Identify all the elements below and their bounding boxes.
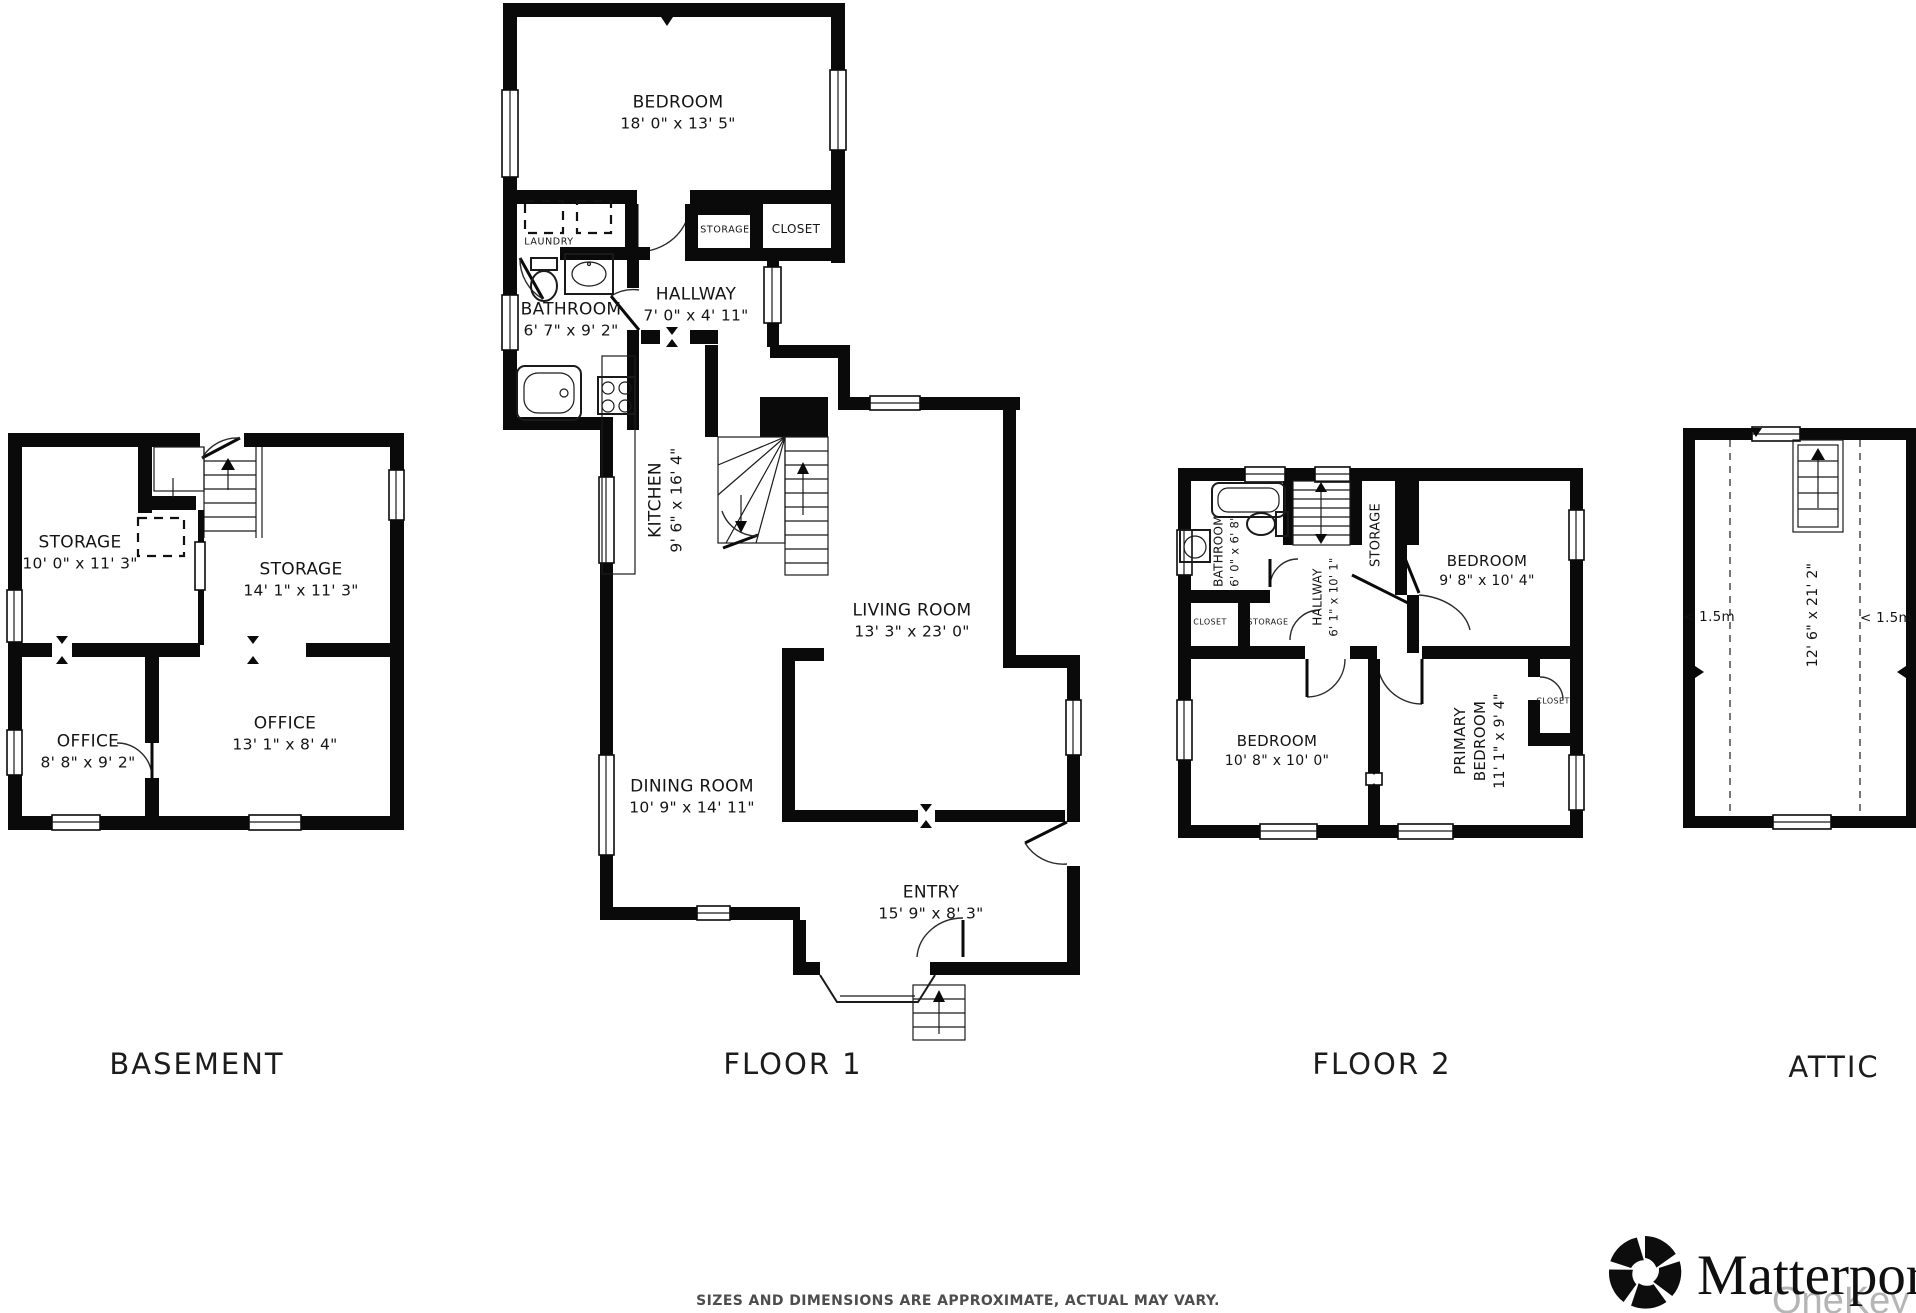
room-label-storage-small-f2: STORAGE: [1248, 618, 1289, 629]
room-label-closet-f2: CLOSET: [1193, 618, 1226, 629]
room-label-office1: OFFICE 8' 8" x 9' 2": [40, 731, 135, 774]
attic-dims-label: 12' 6" x 21' 2": [1804, 563, 1822, 668]
room-label-storage-f1: STORAGE: [700, 225, 749, 238]
room-label-bedroom-f1: BEDROOM 18' 0" x 13' 5": [620, 92, 735, 135]
title-basement: BASEMENT: [109, 1047, 284, 1081]
room-label-dining: DINING ROOM 10' 9" x 14' 11": [629, 776, 755, 819]
floor1-floorplan: [498, 0, 1083, 1045]
room-label-closet-primary: CLOSET: [1536, 697, 1569, 708]
matterport-logo-icon: [1603, 1232, 1687, 1313]
room-label-bathroom-f2: BATHROOM 6' 0" x 6' 8": [1212, 515, 1243, 587]
room-label-hallway-f2: HALLWAY 6' 1" x 10' 1": [1311, 557, 1342, 636]
room-label-bathroom-f1: BATHROOM 6' 7" x 9' 2": [521, 299, 622, 342]
room-label-primary-bedroom: PRIMARY BEDROOM 11' 1" x 9' 4": [1451, 693, 1509, 788]
title-floor1: FLOOR 1: [723, 1047, 862, 1081]
title-attic: ATTIC: [1788, 1050, 1879, 1084]
room-label-closet-f1: CLOSET: [772, 222, 820, 238]
floorplan-sheet: STORAGE 10' 0" x 11' 3" STORAGE 14' 1" x…: [0, 0, 1916, 1313]
disclaimer-text: SIZES AND DIMENSIONS ARE APPROXIMATE, AC…: [696, 1293, 1220, 1309]
room-label-living: LIVING ROOM 13' 3" x 23' 0": [853, 600, 972, 643]
room-dims: 10' 0" x 11' 3": [22, 554, 137, 574]
room-label-storage1: STORAGE 10' 0" x 11' 3": [22, 532, 137, 575]
room-label-laundry: LAUNDRY: [524, 237, 573, 250]
room-label-bedroom-tr-f2: BEDROOM 9' 8" x 10' 4": [1439, 552, 1534, 590]
room-label-office2: OFFICE 13' 1" x 8' 4": [232, 713, 337, 756]
room-name: STORAGE: [22, 532, 137, 554]
basement-floorplan: [6, 430, 406, 836]
room-label-storage2: STORAGE 14' 1" x 11' 3": [243, 559, 358, 602]
room-label-kitchen: KITCHEN 9' 6" x 16' 4": [645, 447, 688, 552]
attic-left-height-marker: < 1.5m: [1683, 609, 1735, 627]
room-label-bedroom-bl-f2: BEDROOM 10' 8" x 10' 0": [1225, 732, 1330, 770]
matterport-wordmark: Matterport: [1697, 1243, 1916, 1308]
attic-right-height-marker: < 1.5m: [1860, 610, 1912, 628]
room-label-hallway-f1: HALLWAY 7' 0" x 4' 11": [643, 284, 748, 327]
room-label-entry: ENTRY 15' 9" x 8' 3": [878, 882, 983, 925]
title-floor2: FLOOR 2: [1312, 1047, 1451, 1081]
room-label-storage-tall-f2: STORAGE: [1367, 503, 1384, 567]
